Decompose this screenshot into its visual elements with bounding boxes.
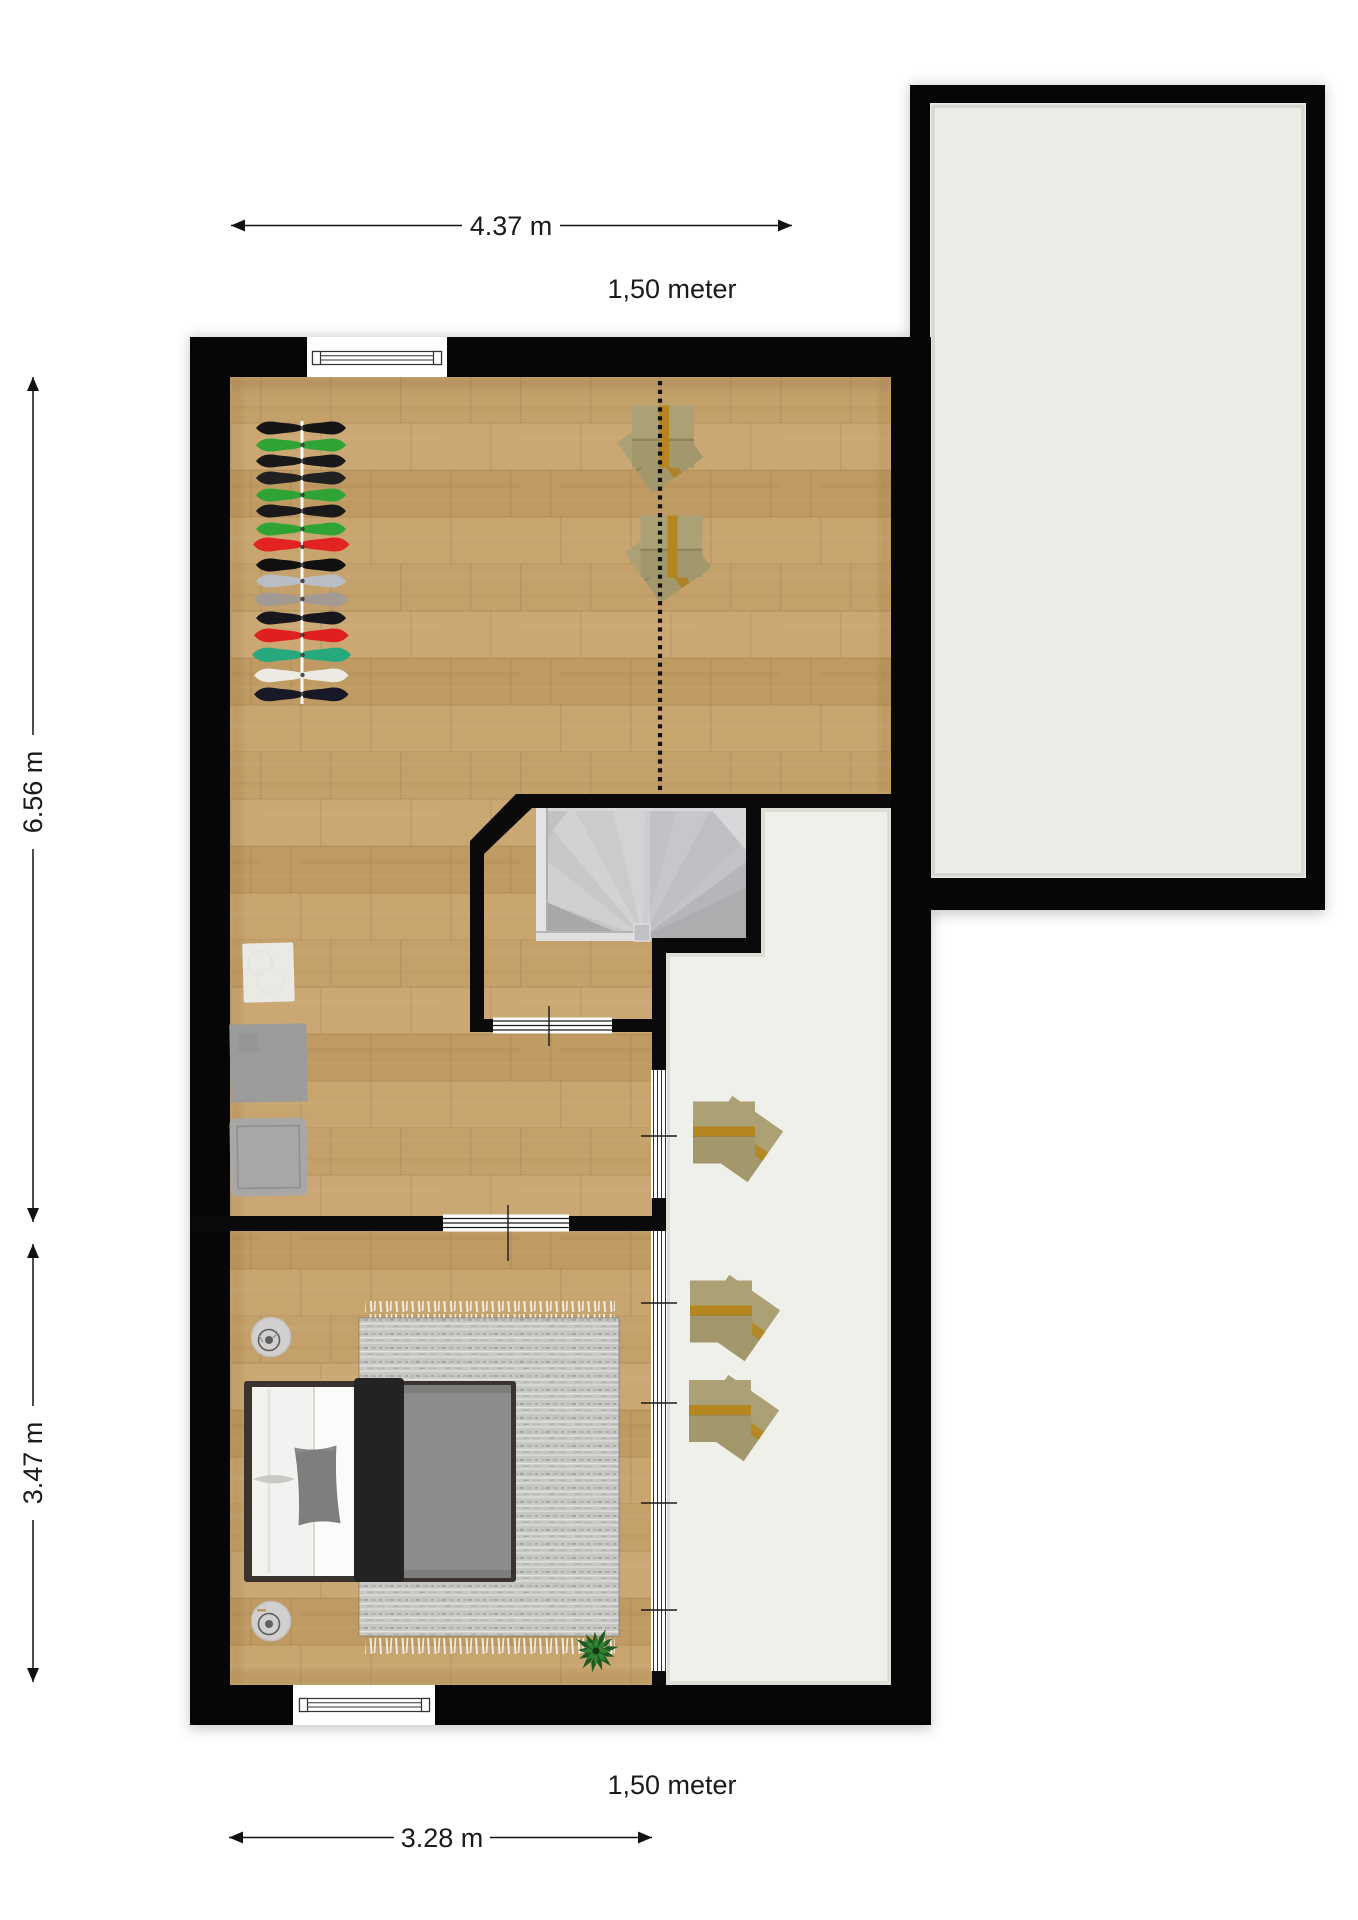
svg-text:6.56 m: 6.56 m: [18, 751, 48, 834]
svg-text:3.47 m: 3.47 m: [18, 1422, 48, 1505]
svg-text:1,50 meter: 1,50 meter: [607, 1770, 736, 1800]
svg-text:1,50 meter: 1,50 meter: [607, 274, 736, 304]
svg-text:3.28 m: 3.28 m: [401, 1823, 484, 1853]
svg-text:4.37 m: 4.37 m: [470, 211, 553, 241]
